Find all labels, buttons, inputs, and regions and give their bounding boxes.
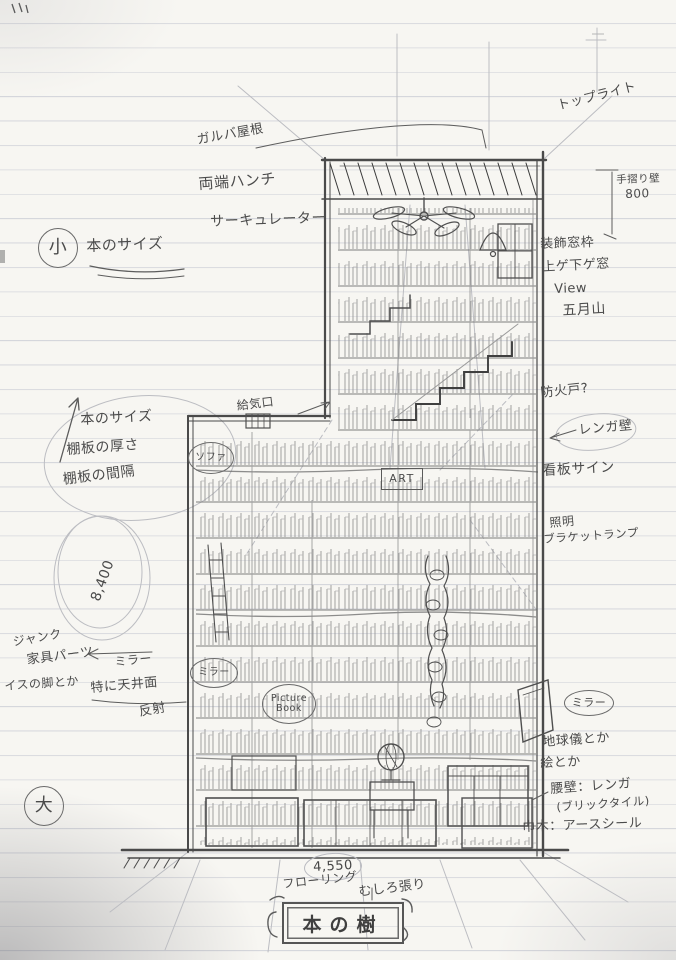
- bookshelves: [196, 208, 538, 848]
- note-view: View: [554, 282, 587, 298]
- note-handrail-wall: 手摺り壁: [616, 172, 660, 186]
- art-label: ART: [381, 468, 423, 490]
- note-satsukiyama: 五月山: [562, 301, 606, 319]
- size-large-circle: 大: [24, 786, 64, 826]
- note-decorative-window: 装飾窓枠: [540, 236, 595, 253]
- note-book-size-small: 本のサイズ: [86, 235, 164, 255]
- note-lighting: 照明: [549, 515, 575, 531]
- title-sign: 本の樹: [282, 902, 404, 944]
- mirror-circle-label: ミラー: [190, 658, 238, 688]
- size-small-circle: 小: [38, 228, 78, 268]
- picture-book-label: Picture Book: [262, 684, 316, 724]
- sofa-label: ソファ: [188, 442, 234, 474]
- dim-800: 800: [625, 187, 650, 202]
- sketch-page: 小 本のサイズ ガルバ屋根 両端ハンチ サーキュレーター トップライト 手摺り壁…: [0, 0, 676, 960]
- note-paintings-etc: 絵とか: [540, 756, 581, 772]
- mirror-right-label: ミラー: [564, 690, 614, 716]
